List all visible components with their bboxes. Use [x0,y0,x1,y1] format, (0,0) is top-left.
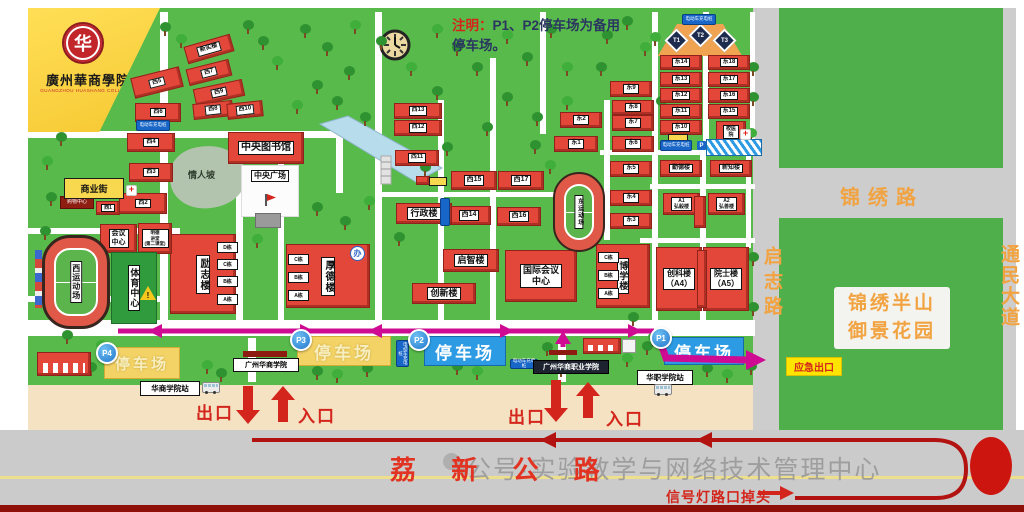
building [416,176,430,185]
building: 西17 [498,171,544,190]
tree-icon [312,202,323,216]
parking-chip: P [697,141,706,150]
lovers-slope-label: 情人坡 [188,168,215,181]
tree-icon [622,353,633,367]
emergency-exit-label: 应急出口 [786,357,842,376]
court-label: T3 [718,34,731,47]
building-label: 西11 [408,153,426,162]
building-label: 西17 [511,175,532,185]
note-prefix: 注明： [452,18,493,33]
building-label: 东17 [720,75,739,84]
building: 勤德楼 [660,160,702,177]
building: 西13 [394,103,442,119]
building: 明德 讲堂 (第二课堂) [138,223,172,254]
east-stadium-label: 东运动场 [574,195,583,229]
building: 东3 [610,213,652,229]
central-plaza-label: 中央广场 [251,170,289,182]
tree-icon [532,112,543,126]
building-label: D栋 [217,242,238,253]
building: 东16 [708,88,750,103]
tree-icon [432,86,443,100]
tree-icon [364,196,375,210]
tree-icon [312,366,323,380]
building-label: 西8 [205,105,221,116]
building-label: 中央图书馆 [238,141,294,155]
court-label: T1 [670,34,683,47]
tree-icon [596,62,607,76]
parking-badge-p2: P2 [408,329,430,351]
building: 东8 [612,100,654,115]
building-label: 东6 [625,139,640,148]
tree-icon [332,96,343,110]
building-label: 西9 [211,86,228,98]
building: 东10 [660,120,702,135]
building [622,339,636,353]
college-seal-icon: 华 [62,22,104,64]
building: 创新楼 [412,283,476,304]
tree-icon [442,142,453,156]
stage-platform [255,213,281,228]
building-label: 创新楼 [427,287,460,300]
green-block-north [779,8,1003,168]
stadium-stands [35,250,42,308]
voc-gate-label: 广州华商职业学院 [533,360,609,374]
building: 西16 [497,207,541,226]
tree-icon [292,100,303,114]
tree-icon [545,160,556,174]
sign [440,198,450,226]
building-label: 院士楼 （A5） [710,268,742,289]
building-label: 励志楼 [196,255,210,294]
bus-icon [202,382,220,393]
exit-label-east: 出口 [508,403,546,428]
building-label: 东14 [672,58,691,67]
tree-icon [472,62,483,76]
building-label: 国际会议 中心 [520,264,562,288]
tree-icon [243,20,254,34]
medical-cross-icon [126,185,137,196]
sign: 商业街 [64,178,124,199]
building: 东11 [660,104,702,119]
tree-icon [300,24,311,38]
building: 西2 [119,193,167,214]
east-stadium: 东运动场 [553,172,605,252]
building: 东12 [660,88,702,103]
building-label: 东1 [568,139,583,148]
building: 西3 [129,163,173,182]
building-label: 东13 [672,75,691,84]
charging-parking-lot [706,139,762,156]
parking-badge-p4: P4 [96,342,118,364]
building-label: B栋 [217,276,238,287]
building-label: 西10 [235,104,255,115]
tongmin-road-label: 通民大道 [995,244,1022,328]
estate-line2: 御景花园 [848,318,936,346]
west-stadium: 西运动场 [42,235,110,329]
exit-label-west: 出口 [196,399,234,424]
building: 西14 [447,206,491,225]
tree-icon [530,140,541,154]
building-label: 创科楼 （A4） [663,268,695,289]
building-label: 东10 [672,123,691,132]
campus-road [336,131,343,193]
building-label: 西5 [148,76,165,89]
estate-sign: 锦绣半山 御景花园 [834,287,950,349]
building-label: C栋 [217,259,238,270]
tree-icon [746,361,757,375]
tree-icon [56,132,67,146]
voc-gate-bar [549,350,577,355]
building: 院士楼 （A5） [703,247,749,311]
building-label: 东12 [672,91,691,100]
building: 西15 [451,171,497,190]
tree-icon [322,42,333,56]
building: 东15 [708,104,750,119]
building-label: 东15 [720,107,739,116]
tree-icon [46,192,57,206]
building: 东6 [612,136,654,152]
tree-icon [42,156,53,170]
building-label: 西13 [409,106,428,115]
building-label: 西7 [200,66,217,79]
building: 创科楼 （A4） [656,247,702,311]
tree-icon [622,16,633,30]
building-label: 东2 [573,115,588,124]
building-label: 东16 [720,91,739,100]
office-icon: 办 [350,246,365,261]
building-label: 西16 [509,211,530,221]
tree-icon [360,112,371,126]
court-label: T2 [694,29,707,42]
building: 东14 [660,55,702,70]
building-label: A栋 [598,288,619,299]
charging-sign: 电动车充电桩 [660,140,692,151]
building-label: 西4 [143,138,158,147]
qizhi-road-label: 启志路 [758,246,785,321]
building: 国际会议 中心 [505,250,577,302]
campus-map: 新实楼西7西9西5西8西10西6西4西3西2西1购物中心商业街中央图书馆西13西… [0,0,1024,512]
tree-icon [62,330,73,344]
parking-area-p1: 停车场 [664,337,744,365]
building-label: 明德 讲堂 (第二课堂) [142,229,169,247]
station-huazhi: 华职学院站 [637,370,693,385]
building: 东4 [610,190,652,206]
building: 西12 [394,120,442,136]
tree-icon [252,234,263,248]
hospital-cross-icon [740,129,751,140]
building-label: A1 弘毅楼 [671,197,692,211]
building: 东17 [708,72,750,87]
tree-icon [332,369,343,383]
building: 西4 [127,133,175,152]
west-stadium-label: 西运动场 [70,261,82,303]
tree-icon [722,369,733,383]
tree-icon [344,66,355,80]
entrance-label-east: 入口 [606,405,644,430]
station-huashang: 华商学院站 [140,381,200,396]
building-label: 新实楼 [196,41,222,56]
building-label: 西6 [150,108,165,117]
building-label: 勤德楼 [669,164,693,173]
building: 东13 [660,72,702,87]
building-label: C栋 [598,252,619,263]
tree-icon [272,56,283,70]
tree-icon [160,22,171,36]
building-label: 西2 [135,199,150,208]
building-label: C栋 [288,254,309,265]
sports-center-label: 体育中心 [128,265,141,311]
tree-icon [216,368,227,382]
building-label: 东5 [623,164,638,173]
campus-road [375,12,382,322]
tree-icon [312,80,323,94]
parking-badge-p3: P3 [290,329,312,351]
building-label: A栋 [288,290,309,301]
building: 新知楼 [710,160,752,177]
tree-icon [258,36,269,50]
tree-icon [202,360,213,374]
tree-icon [40,226,51,240]
sign [429,177,447,186]
building-label: A2 弘善楼 [716,197,737,211]
tree-icon [502,92,513,106]
main-gate-bar [243,351,287,357]
tree-icon [340,216,351,230]
building: 东18 [708,55,750,70]
building: 东1 [554,136,598,152]
building-label: 厚德楼 [321,257,335,296]
estate-line1: 锦绣半山 [848,290,936,318]
building [583,338,621,354]
building-label: 东18 [720,58,739,67]
tree-icon [562,62,573,76]
building-label: B栋 [598,270,619,281]
tree-icon [482,122,493,136]
tree-icon [628,312,639,326]
building: 启智楼 [443,249,499,272]
building [697,250,707,308]
uturn-label: 信号灯路口掉头 [666,487,771,507]
building-label: 东3 [623,216,638,225]
building-label: 会议 中心 [109,229,129,248]
entrance-label-west: 入口 [298,402,336,427]
building: 东2 [560,112,602,128]
building: A2 弘善楼 [708,193,745,215]
tree-icon [350,20,361,34]
tree-icon [406,62,417,76]
building: 西1 [96,201,120,215]
charging-sign: 电动车充电桩 [136,120,170,131]
note-line1: P1、P2停车场为备用 [493,18,621,33]
building-label: A栋 [217,294,238,305]
tree-icon [432,24,443,38]
charging-sign: 电动车充电桩 [682,14,716,25]
building: 东7 [612,115,654,131]
building-label: 西14 [459,210,480,220]
tree-icon [376,36,387,50]
road-edge-line [0,505,1024,512]
building-label: 启智楼 [454,254,487,267]
building [694,196,706,228]
building-label: 行政楼 [407,207,440,220]
bus-icon [654,384,672,395]
tree-icon [394,232,405,246]
flagpole [265,194,267,206]
map-note: 注明：P1、P2停车场为备用 停车场。 [452,16,620,57]
campus-road [28,131,380,138]
building: 中央图书馆 [228,132,304,164]
campus-road [490,58,496,322]
building-label: 东4 [623,193,638,202]
building-label: 西3 [143,168,158,177]
roadside-strip [28,385,755,430]
building: 西11 [395,150,439,166]
tree-icon [702,363,713,377]
sports-center: 体育中心 [111,252,157,324]
building-label: 西1 [101,204,115,212]
building [37,352,91,376]
building: 东9 [610,81,652,97]
building-label: 校医 院 [723,125,739,139]
building: 东5 [610,161,652,177]
building-label: B栋 [288,272,309,283]
jinxiu-road-label: 锦绣路 [840,181,924,210]
building-label: 西15 [464,175,485,185]
charging-sign: 电动车充电桩 [396,340,409,367]
central-plaza: 中央广场 [241,165,299,217]
parking-area-p2: 停车场 [424,336,506,366]
building-label: 东7 [625,118,640,127]
building-label: 东11 [672,107,690,116]
lixin-road-label: 荔 新 公 路 [390,450,614,487]
building-label: 西12 [409,123,428,132]
building-label: 东9 [623,84,638,93]
building-label: 东8 [625,103,640,112]
building-label: 新知楼 [719,164,743,173]
tree-icon [472,366,483,380]
note-line2: 停车场。 [452,36,620,56]
tree-icon [562,96,573,110]
parking-badge-p1: P1 [650,327,672,349]
tree-icon [650,32,661,46]
main-gate-label: 广州华商学院 [233,358,299,372]
